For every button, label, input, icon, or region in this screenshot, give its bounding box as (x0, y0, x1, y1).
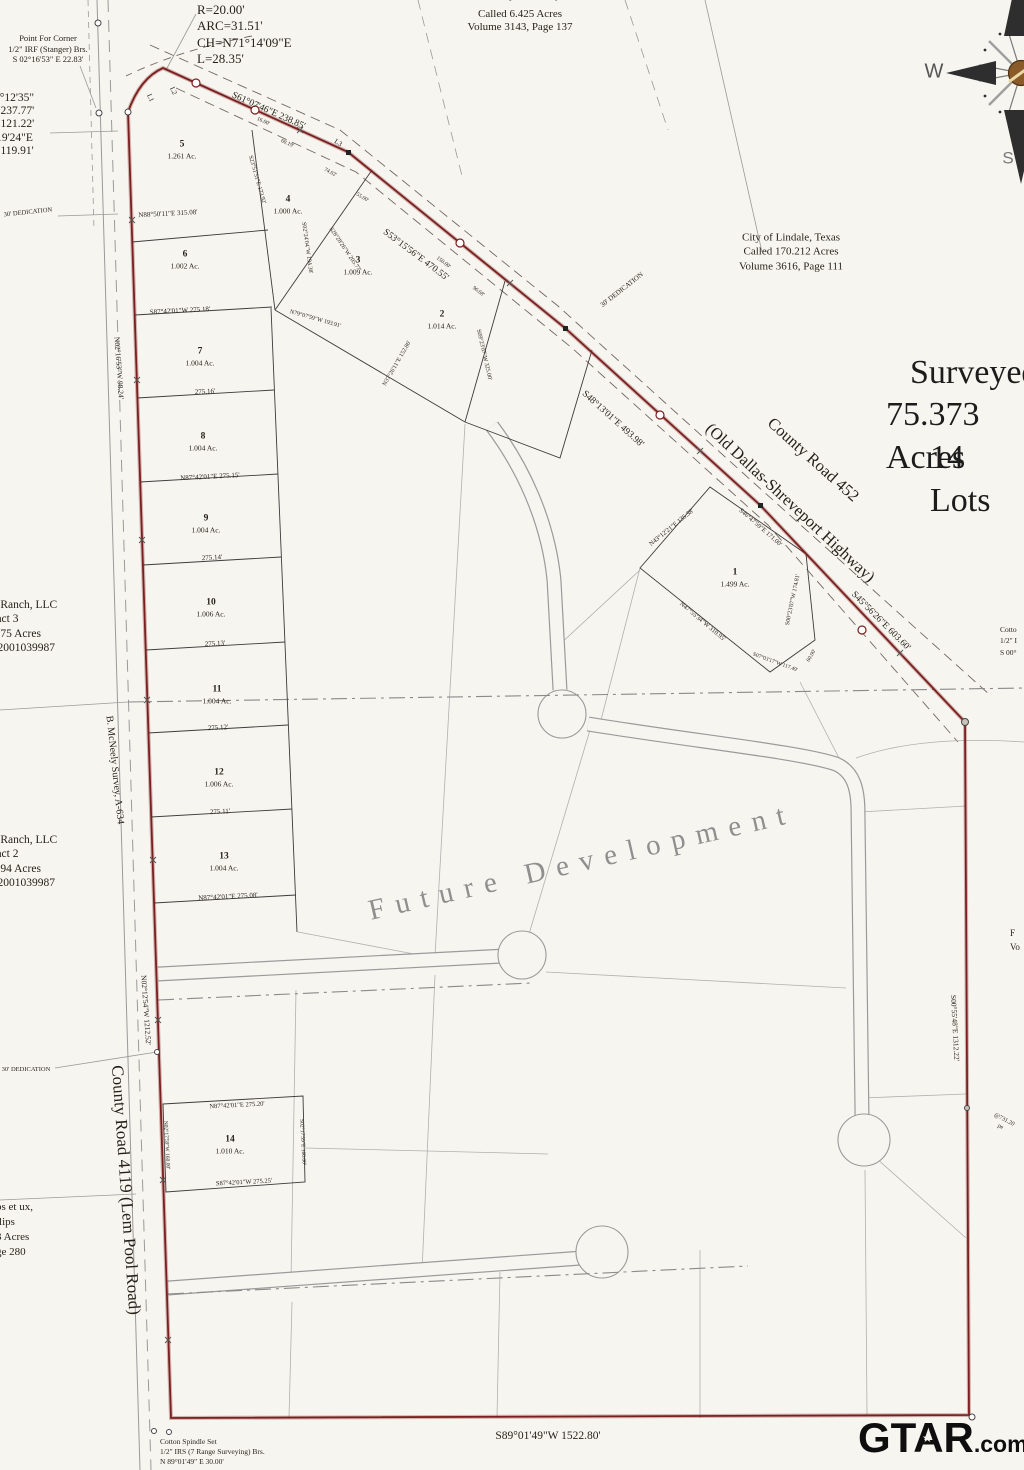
culdesac-top (538, 690, 586, 738)
trust-block: Called 6.425 Acres Volume 3143, Page 137 (468, 8, 573, 34)
lot-label-2: 21.014 Ac. (428, 311, 457, 330)
title-line1: Surveyed (910, 352, 1024, 395)
ranch-tract3-block: 19 Ranch, LLC Tract 3 8.775 Acres 202001… (0, 598, 57, 656)
dim-275-11: 275.11' (210, 807, 231, 817)
lot-acreage: 1.002 Ac. (171, 262, 200, 270)
street-east (588, 724, 890, 1166)
culdesac-south (576, 1226, 628, 1278)
lot-label-11: 111.004 Ac. (203, 686, 232, 705)
highway-symbols (192, 79, 866, 634)
dim-275-13: 275.13' (205, 639, 226, 649)
lindale-block: City of Lindale, Texas Called 170.212 Ac… (739, 231, 843, 274)
lot-number: 12 (205, 769, 234, 779)
lot-number: 10 (197, 599, 226, 609)
street-mid-west (158, 931, 546, 979)
plat-sheet: GTAR.com ★ Point For Corner 1/2" IRF (St… (0, 0, 1024, 1470)
compass-s-label: S (1002, 147, 1013, 168)
lot-acreage: 1.006 Ac. (197, 610, 226, 618)
lot-number: 9 (192, 515, 221, 525)
lot-acreage: 1.004 Ac. (203, 697, 232, 705)
dim-275-16: 275.16' (195, 387, 216, 397)
lot-acreage: 1.004 Ac. (192, 526, 221, 534)
lot-number: 2 (428, 311, 457, 321)
lot-number: 5 (168, 141, 197, 151)
lot-number: 1 (721, 569, 750, 579)
lot-acreage: 1.004 Ac. (186, 359, 215, 367)
lot-number: 4 (274, 196, 303, 206)
dim-275-14: 275.14' (202, 553, 223, 563)
lot-number: 6 (171, 251, 200, 261)
lot-label-7: 71.004 Ac. (186, 348, 215, 367)
compass-west-arrow (946, 61, 996, 85)
lot-label-3: 31.009 Ac. (344, 257, 373, 276)
plat-drawing (0, 0, 1024, 1470)
lot-acreage: 1.499 Ac. (721, 580, 750, 588)
lot-acreage: 1.014 Ac. (428, 322, 457, 330)
compass-north-spike (1004, 0, 1024, 36)
right-edge-sliver: F Vo (1010, 926, 1020, 955)
lot-acreage: 1.000 Ac. (274, 207, 303, 215)
point-for-corner-note: Point For Corner 1/2" IRF (Stanger) Brs.… (8, 33, 88, 65)
survey-ticks (129, 127, 903, 1343)
lot-label-5: 51.261 Ac. (168, 141, 197, 160)
cotton-right-note: Cotto 1/2" I S 00° (1000, 624, 1017, 658)
gtar-texas-star-icon: ★ (922, 1431, 933, 1446)
lot-acreage: 1.004 Ac. (189, 444, 218, 452)
left-bearing-list: 9°12'35" =237.77' =121.22' '19'24"E =119… (0, 92, 34, 158)
gtar-watermark: GTAR.com ★ (858, 1414, 1024, 1462)
gtar-logo-text: GTAR (858, 1414, 974, 1461)
lot-acreage: 1.010 Ac. (216, 1147, 245, 1155)
lot-label-8: 81.004 Ac. (189, 433, 218, 452)
street-top (492, 426, 586, 738)
trust-block-partial: Montez Vasquez Family Trust (454, 0, 586, 3)
lot-label-12: 121.006 Ac. (205, 769, 234, 788)
brg-south: S89°01'49"W 1522.80' (495, 1429, 600, 1443)
lot-number: 11 (203, 686, 232, 696)
lot-number: 13 (210, 853, 239, 863)
lot-acreage: 1.261 Ac. (168, 152, 197, 160)
lot-label-10: 101.006 Ac. (197, 599, 226, 618)
lot-label-9: 91.004 Ac. (192, 515, 221, 534)
curve-data-note: R=20.00' ARC=31.51' CH=N71°14'09"E L=28.… (197, 2, 292, 67)
culdesac-mid (498, 931, 546, 979)
ranch-tract2-block: 19 Ranch, LLC Tract 2 1.694 Acres 202001… (0, 833, 57, 891)
lot-number: 7 (186, 348, 215, 358)
compass-w-label: W (925, 60, 944, 85)
lot-label-1: 11.499 Ac. (721, 569, 750, 588)
lot-acreage: 1.009 Ac. (344, 268, 373, 276)
lot-label-13: 131.004 Ac. (210, 853, 239, 872)
lot-acreage: 1.006 Ac. (205, 780, 234, 788)
phillips-block: ps et ux, llips 3 Acres ge 280 (0, 1200, 33, 1259)
centerlines (128, 688, 1024, 1294)
lot-label-14: 141.010 Ac. (216, 1136, 245, 1155)
lot-label-4: 41.000 Ac. (274, 196, 303, 215)
lot-number: 3 (344, 257, 373, 267)
lot-number: 8 (189, 433, 218, 443)
title-line3: 14 Lots (930, 437, 1024, 522)
lot-number: 14 (216, 1136, 245, 1146)
lot-acreage: 1.004 Ac. (210, 864, 239, 872)
lot-label-6: 61.002 Ac. (171, 251, 200, 270)
cotton-spindle-note: Cotton Spindle Set 1/2" IRS (7 Range Sur… (160, 1437, 265, 1467)
street-south-west (168, 1226, 628, 1288)
dim-275-12: 275.12' (208, 723, 229, 733)
gtar-logo-suffix: .com (974, 1431, 1024, 1457)
dedication-west: 30' DEDICATION (2, 1066, 51, 1074)
culdesac-east (838, 1114, 890, 1166)
